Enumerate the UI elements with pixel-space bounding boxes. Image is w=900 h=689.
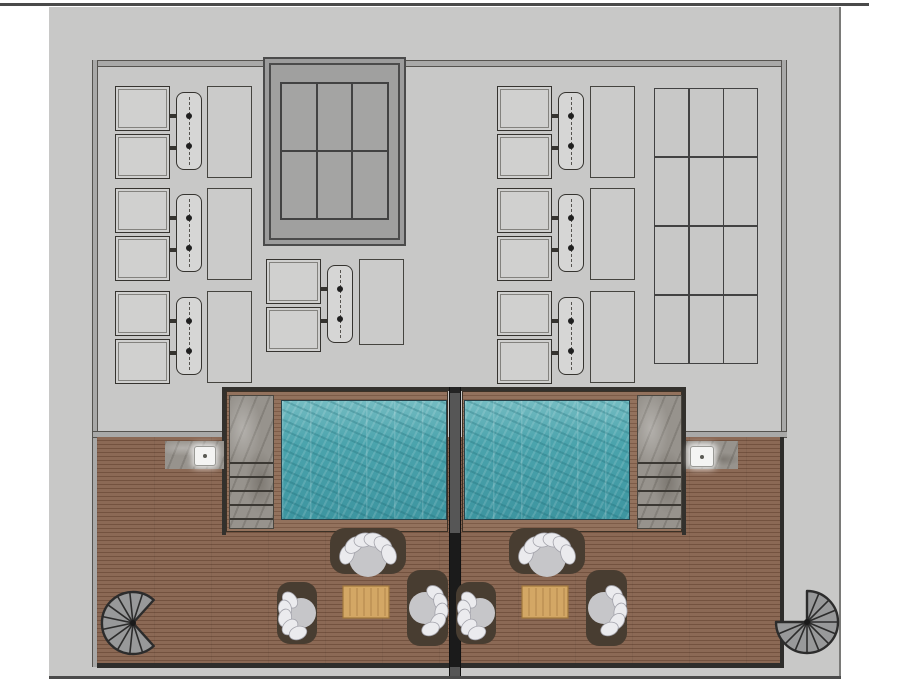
fan-hub <box>568 245 574 251</box>
ac-unit <box>497 339 552 384</box>
ac-unit <box>266 259 321 304</box>
ac-unit <box>115 339 170 384</box>
fan-unit <box>176 92 202 170</box>
hvac-cluster <box>497 291 584 384</box>
deck-edge-trim-right <box>780 437 784 667</box>
fan-unit <box>327 265 353 343</box>
swimming-pool-right <box>464 400 630 520</box>
step-treads <box>638 450 681 528</box>
fan-hub <box>568 215 574 221</box>
fan-hub <box>568 348 574 354</box>
hvac-cluster <box>497 188 584 281</box>
ac-unit <box>115 291 170 336</box>
ac-unit <box>266 307 321 352</box>
pool-steps-right <box>637 395 682 529</box>
fan-hub <box>337 286 343 292</box>
fan-hub <box>186 245 192 251</box>
fan-hub <box>568 143 574 149</box>
fan-unit <box>558 297 584 375</box>
drawing-frame-bottom <box>49 676 841 679</box>
shower-tray <box>690 446 714 467</box>
divider-cap <box>450 387 460 393</box>
hvac-cluster <box>115 188 202 281</box>
ac-unit <box>497 291 552 336</box>
hvac-cluster <box>497 86 584 179</box>
outdoor-shower-left <box>165 441 224 469</box>
equipment-pad <box>590 188 635 280</box>
fan-unit <box>176 297 202 375</box>
equipment-pad <box>207 188 252 280</box>
pool-steps-left <box>229 395 274 529</box>
fan-hub <box>186 215 192 221</box>
fan-hub <box>186 113 192 119</box>
fan-unit <box>558 194 584 272</box>
pool-terrace-right <box>462 391 682 532</box>
ac-unit <box>497 134 552 179</box>
unit-divider-wall <box>449 387 461 677</box>
ac-unit <box>115 134 170 179</box>
ac-unit <box>115 188 170 233</box>
drawing-frame-top <box>0 3 869 6</box>
hvac-cluster <box>266 259 353 352</box>
outdoor-shower-right <box>686 441 738 469</box>
ac-unit <box>497 86 552 131</box>
ac-unit <box>115 236 170 281</box>
equipment-pad <box>590 86 635 178</box>
step-treads <box>230 450 273 528</box>
ac-unit <box>497 236 552 281</box>
fan-hub <box>568 113 574 119</box>
fan-unit <box>176 194 202 272</box>
equipment-pad <box>207 291 252 383</box>
deck-edge-trim-bottom <box>97 663 784 668</box>
fan-hub <box>186 348 192 354</box>
fan-hub <box>568 318 574 324</box>
ac-unit <box>497 188 552 233</box>
roof-terrace-floor-plan <box>0 0 900 689</box>
fan-hub <box>186 318 192 324</box>
equipment-pad <box>590 291 635 383</box>
ac-unit <box>115 86 170 131</box>
hvac-cluster <box>115 86 202 179</box>
shower-tray <box>194 446 216 466</box>
fan-unit <box>558 92 584 170</box>
equipment-pad <box>207 86 252 178</box>
swimming-pool-left <box>281 400 447 520</box>
fan-hub <box>186 143 192 149</box>
equipment-pad <box>359 259 404 345</box>
fan-hub <box>337 316 343 322</box>
pool-terrace-left <box>226 391 448 532</box>
divider-dark-section <box>450 533 460 667</box>
hvac-cluster <box>115 291 202 384</box>
